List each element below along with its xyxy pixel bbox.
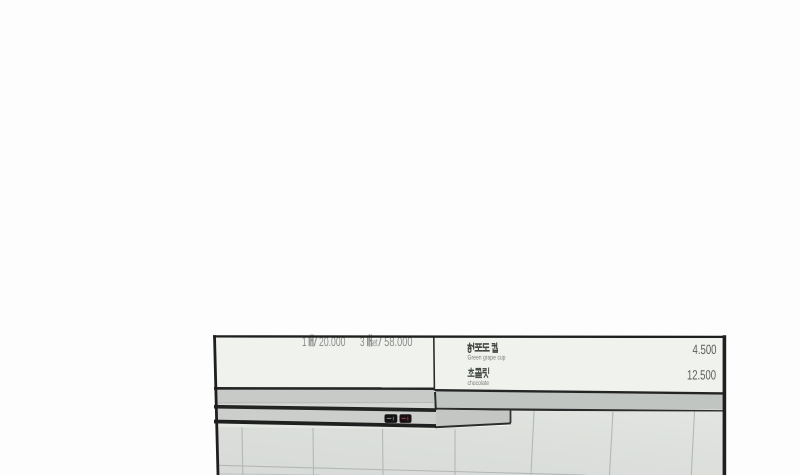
svg-text:12.500: 12.500 — [687, 368, 716, 383]
svg-text:4.500: 4.500 — [693, 342, 717, 357]
svg-text:chocolate: chocolate — [468, 380, 490, 387]
svg-text:Green grape cup: Green grape cup — [468, 354, 506, 361]
